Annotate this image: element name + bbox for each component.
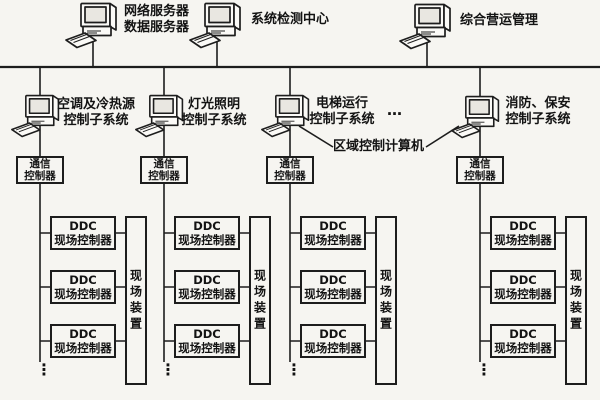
- comm-controller-box: 通信 控制器: [16, 156, 64, 184]
- station-label-operations-mgmt: 综合营运管理: [460, 13, 538, 29]
- comm-controller-box: 通信 控制器: [140, 156, 188, 184]
- ddc-line: 现场控制器: [178, 233, 236, 247]
- ddc-controller-box: DDC 现场控制器: [174, 324, 240, 358]
- comm-controller-line: 控制器: [464, 170, 496, 182]
- subsystem-ellipsis: …: [387, 101, 403, 119]
- ddc-line: 现场控制器: [494, 341, 552, 355]
- computer-icon: [64, 2, 122, 50]
- ddc-line: 现场控制器: [54, 287, 112, 301]
- ddc-controller-box: DDC 现场控制器: [300, 270, 366, 304]
- trunk-continuation-dots: ⋮: [36, 362, 52, 378]
- subsystem-label-line: 空调及冷热源: [52, 97, 140, 113]
- subsystem-label-line: 控制子系统: [306, 112, 378, 128]
- ddc-line: DDC: [69, 273, 97, 287]
- comm-controller-line: 控制器: [274, 170, 306, 182]
- subsystem-label-line: 灯光照明: [176, 97, 252, 113]
- ddc-controller-box: DDC 现场控制器: [300, 216, 366, 250]
- comm-controller-line: 通信: [280, 158, 301, 170]
- ddc-controller-box: DDC 现场控制器: [490, 216, 556, 250]
- ddc-line: 现场控制器: [304, 287, 362, 301]
- comm-controller-line: 控制器: [148, 170, 180, 182]
- subsystem-label-fire-security: 消防、保安 控制子系统: [498, 96, 578, 127]
- ddc-line: 现场控制器: [54, 233, 112, 247]
- field-device-box: 现场装置: [375, 216, 397, 385]
- ddc-line: DDC: [319, 273, 347, 287]
- trunk-continuation-dots: ⋮: [286, 362, 302, 378]
- station-label-network-server: 网络服务器 数据服务器: [124, 4, 189, 35]
- comm-controller-box: 通信 控制器: [266, 156, 314, 184]
- trunk-continuation-dots: ⋮: [160, 362, 176, 378]
- field-device-box: 现场装置: [249, 216, 271, 385]
- subsystem-label-line: 控制子系统: [176, 113, 252, 129]
- ddc-line: DDC: [319, 327, 347, 341]
- subsystem-label-elevator: 电梯运行 控制子系统: [306, 96, 378, 127]
- ddc-line: DDC: [193, 327, 221, 341]
- ddc-line: 现场控制器: [494, 233, 552, 247]
- ddc-line: DDC: [509, 327, 537, 341]
- station-label-line: 数据服务器: [124, 20, 189, 36]
- ddc-controller-box: DDC 现场控制器: [174, 270, 240, 304]
- comm-controller-line: 通信: [470, 158, 491, 170]
- ddc-line: DDC: [509, 219, 537, 233]
- ddc-controller-box: DDC 现场控制器: [50, 216, 116, 250]
- computer-icon: [188, 2, 246, 50]
- ddc-line: DDC: [193, 273, 221, 287]
- ddc-line: 现场控制器: [178, 341, 236, 355]
- ddc-line: 现场控制器: [178, 287, 236, 301]
- field-device-box: 现场装置: [125, 216, 147, 385]
- subsystem-label-line: 控制子系统: [52, 113, 140, 129]
- ddc-controller-box: DDC 现场控制器: [50, 324, 116, 358]
- station-label-monitor-center: 系统检测中心: [251, 12, 329, 28]
- ddc-line: DDC: [69, 219, 97, 233]
- ddc-line: DDC: [319, 219, 347, 233]
- computer-icon: [398, 3, 456, 51]
- subsystem-label-line: 控制子系统: [498, 112, 578, 128]
- subsystem-label-line: 消防、保安: [498, 96, 578, 112]
- field-device-box: 现场装置: [565, 216, 587, 385]
- ddc-line: 现场控制器: [304, 341, 362, 355]
- ddc-line: DDC: [69, 327, 97, 341]
- comm-controller-box: 通信 控制器: [456, 156, 504, 184]
- ddc-line: 现场控制器: [54, 341, 112, 355]
- ddc-controller-box: DDC 现场控制器: [50, 270, 116, 304]
- system-architecture-diagram: 网络服务器 数据服务器 系统检测中心 综合营运管理 空调及冷热源 控制子系统: [0, 0, 600, 400]
- ddc-controller-box: DDC 现场控制器: [490, 270, 556, 304]
- ddc-line: 现场控制器: [494, 287, 552, 301]
- ddc-controller-box: DDC 现场控制器: [300, 324, 366, 358]
- ddc-line: 现场控制器: [304, 233, 362, 247]
- computer-icon: [450, 95, 504, 140]
- trunk-continuation-dots: ⋮: [476, 362, 492, 378]
- station-label-line: 网络服务器: [124, 4, 189, 20]
- regional-computer-label: 区域控制计算机: [333, 139, 424, 155]
- subsystem-label-line: 电梯运行: [306, 96, 378, 112]
- comm-controller-line: 通信: [154, 158, 175, 170]
- ddc-controller-box: DDC 现场控制器: [490, 324, 556, 358]
- ddc-controller-box: DDC 现场控制器: [174, 216, 240, 250]
- subsystem-label-lighting: 灯光照明 控制子系统: [176, 97, 252, 128]
- ddc-line: DDC: [509, 273, 537, 287]
- ddc-line: DDC: [193, 219, 221, 233]
- comm-controller-line: 控制器: [24, 170, 56, 182]
- subsystem-label-hvac: 空调及冷热源 控制子系统: [52, 97, 140, 128]
- comm-controller-line: 通信: [30, 158, 51, 170]
